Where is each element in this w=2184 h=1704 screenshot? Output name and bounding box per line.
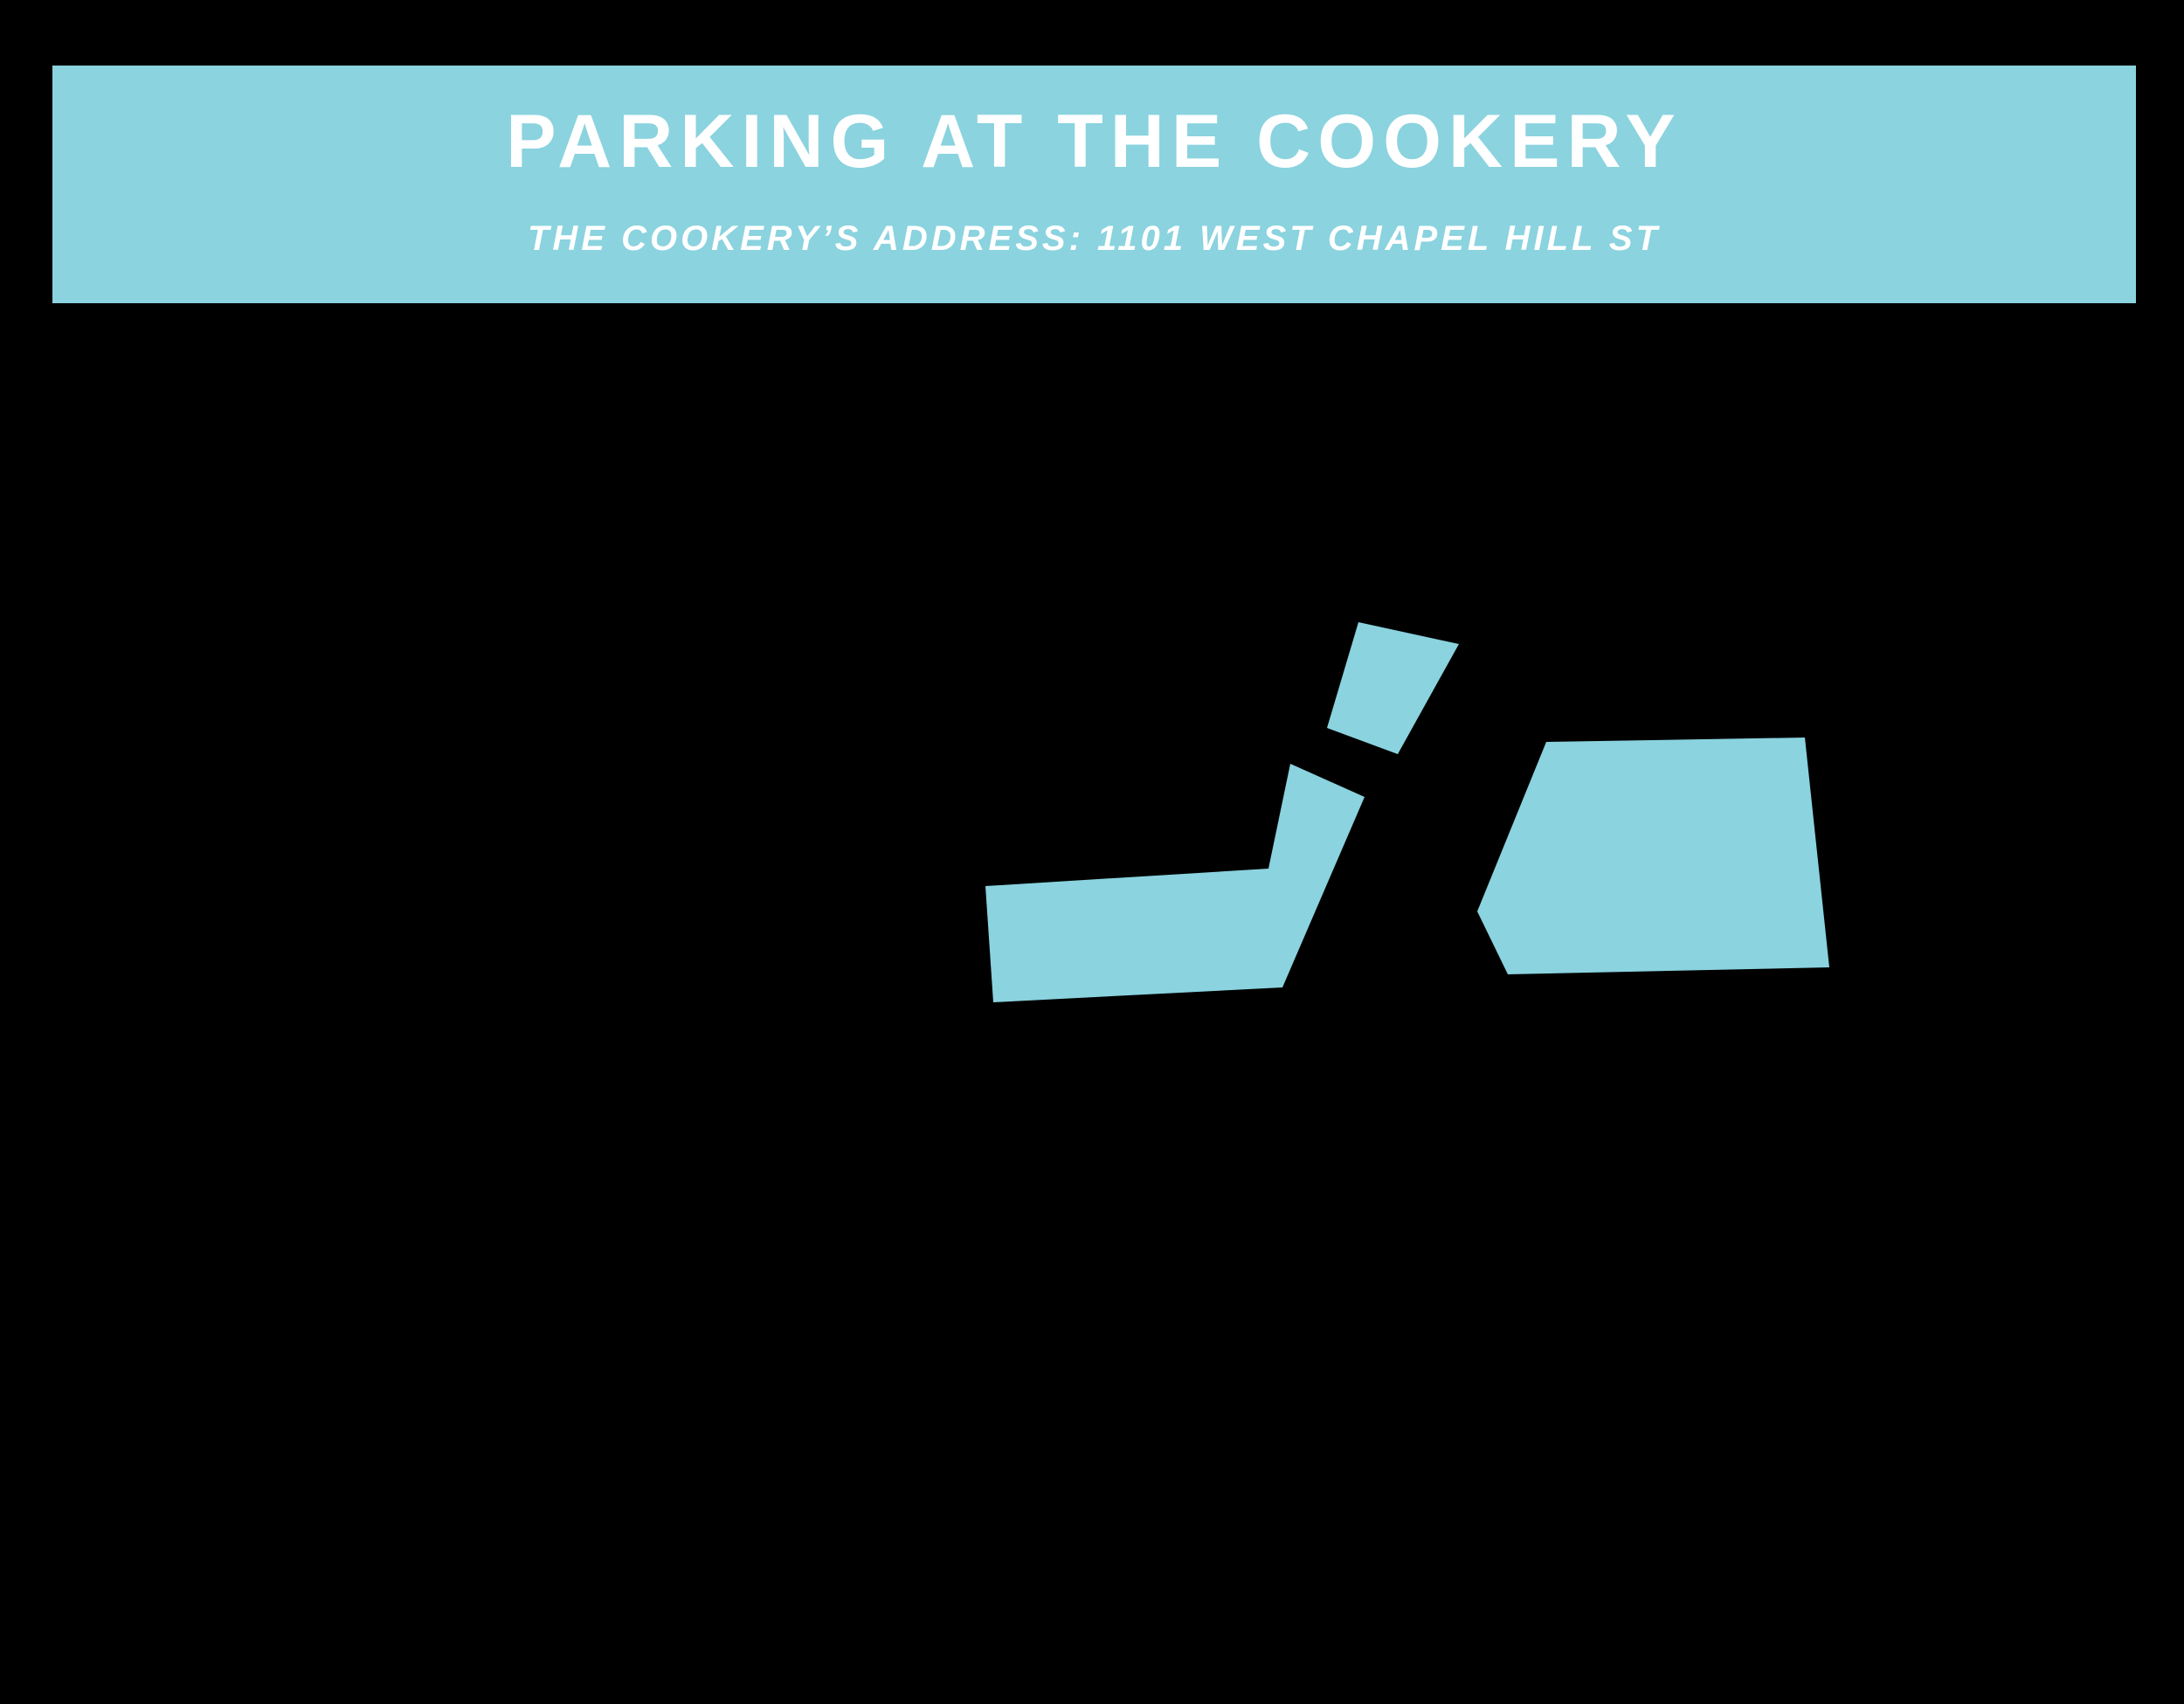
header-banner: PARKING AT THE COOKERY THE COOKERY’S ADD…	[52, 66, 2136, 303]
address-subtitle: THE COOKERY’S ADDRESS: 1101 WEST CHAPEL …	[528, 221, 1661, 256]
parking-area-upper-driveway	[1327, 622, 1459, 754]
page-title: PARKING AT THE COOKERY	[506, 104, 1683, 179]
parking-area-l-shaped-lot	[985, 764, 1365, 1002]
parking-area-main-lot	[1477, 738, 1829, 974]
